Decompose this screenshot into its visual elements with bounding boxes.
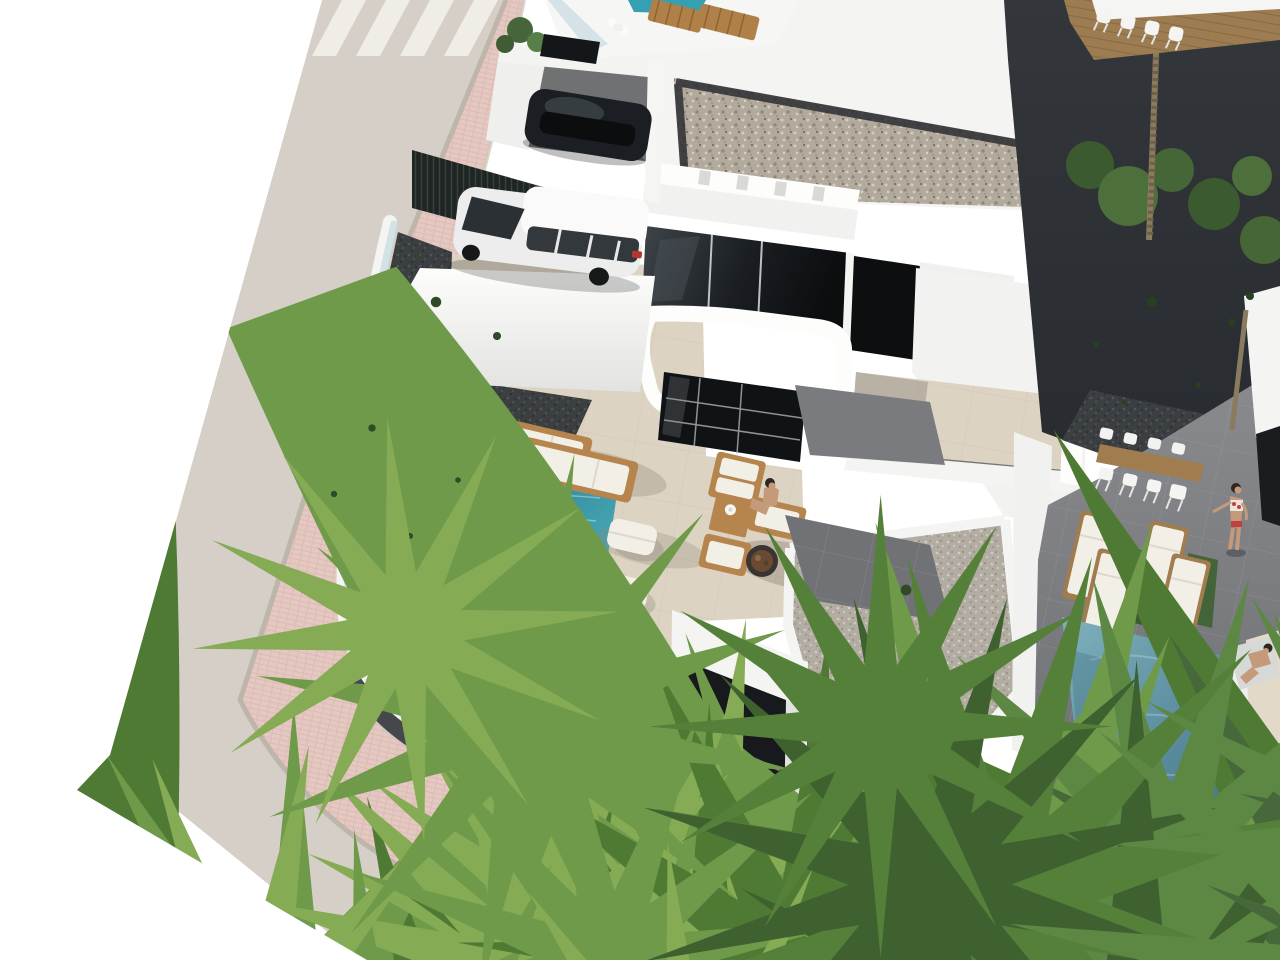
fire-pit <box>746 545 778 577</box>
render-canvas <box>0 0 1280 960</box>
architectural-render <box>0 0 1280 960</box>
